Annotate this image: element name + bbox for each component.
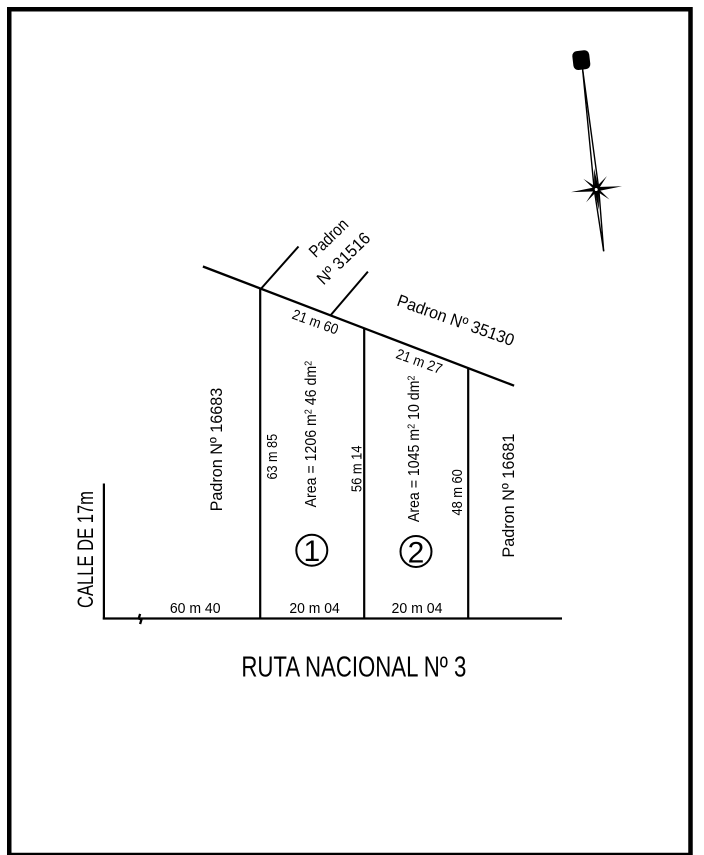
svg-text:56 m 14: 56 m 14 bbox=[349, 446, 365, 493]
svg-text:20 m 04: 20 m 04 bbox=[392, 601, 443, 617]
svg-text:20 m 04: 20 m 04 bbox=[289, 601, 339, 617]
svg-text:48 m 60: 48 m 60 bbox=[450, 469, 466, 515]
svg-text:63 m 85: 63 m 85 bbox=[265, 434, 281, 480]
svg-text:Padron Nº 16683: Padron Nº 16683 bbox=[207, 388, 226, 512]
svg-text:2: 2 bbox=[408, 536, 425, 569]
svg-text:Area = 1206 m2 46 dm2: Area = 1206 m2 46 dm2 bbox=[303, 360, 320, 507]
svg-text:60 m 40: 60 m 40 bbox=[170, 601, 221, 617]
svg-text:Padron Nº 16681: Padron Nº 16681 bbox=[499, 434, 518, 558]
svg-text:RUTA NACIONAL Nº 3: RUTA NACIONAL Nº 3 bbox=[241, 652, 466, 684]
svg-text:1: 1 bbox=[303, 535, 320, 568]
svg-text:CALLE DE 17m: CALLE DE 17m bbox=[73, 491, 98, 608]
svg-text:Area = 1045 m2 10 dm2: Area = 1045 m2 10 dm2 bbox=[406, 375, 423, 522]
